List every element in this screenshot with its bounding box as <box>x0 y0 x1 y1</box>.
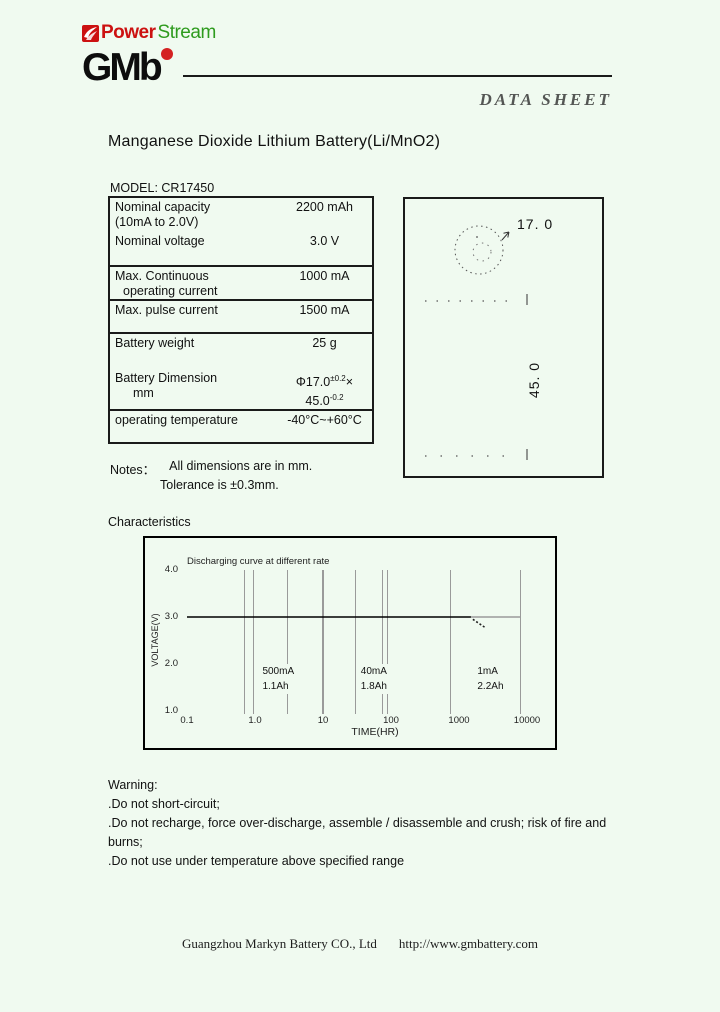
spec-value: 1500 mA <box>277 301 372 332</box>
notes-text-1: All dimensions are in mm. <box>169 459 312 478</box>
spec-value: -40°C~+60°C <box>277 411 372 442</box>
spec-label: operating temperature <box>110 411 277 442</box>
warning-item: .Do not short-circuit; <box>108 795 616 814</box>
battery-dimension-diagram: 17. 0 45. 0 <box>403 197 604 478</box>
notes-heading: Notes： <box>110 459 155 478</box>
table-row: Nominal capacity (10mA to 2.0V) 2200 mAh <box>110 198 372 232</box>
chart-annotation: 1mA2.2Ah <box>475 664 505 694</box>
warning-section: Warning: .Do not short-circuit; .Do not … <box>108 776 616 871</box>
spec-value: Φ17.0±0.2× 45.0-0.2 <box>277 364 372 409</box>
spec-value: 25 g <box>277 334 372 364</box>
datasheet-page: { "page": {"background": "#f0faf0"}, "he… <box>0 0 720 1012</box>
spec-label: Nominal capacity (10mA to 2.0V) <box>110 198 277 232</box>
warning-item: .Do not recharge, force over-discharge, … <box>108 814 616 852</box>
gmb-logo-dot-icon <box>161 48 173 60</box>
table-row: Nominal voltage 3.0 V <box>110 232 372 267</box>
gmb-logo: GMb <box>82 46 182 90</box>
powerstream-logo: PowerStream <box>82 22 216 44</box>
model-label: MODEL: CR17450 <box>110 181 214 195</box>
chart-x-axis-label: TIME(HR) <box>305 726 445 738</box>
spec-label: Max. Continuous operating current <box>110 267 277 299</box>
table-row: Max. Continuous operating current 1000 m… <box>110 267 372 301</box>
gmb-logo-text: GMb <box>82 46 160 89</box>
powerstream-power-text: Power <box>101 22 156 44</box>
notes: Notes： All dimensions are in mm. <box>110 459 312 478</box>
discharge-curve <box>145 538 551 744</box>
spec-label: Battery weight <box>110 334 277 364</box>
chart-y-axis-label: VOLTAGE(V) <box>150 613 160 666</box>
datasheet-label: DATA SHEET <box>420 90 612 110</box>
discharge-chart-plot: 4.03.02.01.00.11.010100100010000500mA1.1… <box>145 538 555 748</box>
table-row: Battery Dimension mm Φ17.0±0.2× 45.0-0.2 <box>110 364 372 411</box>
spec-value: 2200 mAh <box>277 198 372 232</box>
height-dimension-label: 45. 0 <box>526 362 542 398</box>
discharge-chart: 4.03.02.01.00.11.010100100010000500mA1.1… <box>143 536 557 750</box>
spec-label: Battery Dimension mm <box>110 364 277 409</box>
spec-value: 1000 mA <box>277 267 372 299</box>
footer: Guangzhou Markyn Battery CO., Ltdhttp://… <box>0 936 720 952</box>
powerstream-stream-text: Stream <box>158 22 216 44</box>
table-row: Max. pulse current 1500 mA <box>110 301 372 334</box>
characteristics-heading: Characteristics <box>108 515 191 529</box>
spec-value: 3.0 V <box>277 232 372 265</box>
spec-label: Max. pulse current <box>110 301 277 332</box>
page-title: Manganese Dioxide Lithium Battery(Li/MnO… <box>108 133 440 151</box>
warning-item: .Do not use under temperature above spec… <box>108 852 616 871</box>
battery-outline-drawing <box>405 199 598 472</box>
chart-annotation: 40mA1.8Ah <box>359 664 389 694</box>
diameter-dimension-label: 17. 0 <box>517 216 553 232</box>
footer-url[interactable]: http://www.gmbattery.com <box>399 936 538 951</box>
warning-heading: Warning: <box>108 776 616 795</box>
chart-annotation: 500mA1.1Ah <box>260 664 296 694</box>
header-divider <box>183 75 612 77</box>
table-row: Battery weight 25 g <box>110 334 372 364</box>
spec-table: Nominal capacity (10mA to 2.0V) 2200 mAh… <box>108 196 374 444</box>
chart-title: Discharging curve at different rate <box>187 556 329 567</box>
powerstream-swoosh-icon <box>82 25 99 42</box>
footer-company: Guangzhou Markyn Battery CO., Ltd <box>182 936 377 951</box>
notes-text-2: Tolerance is ±0.3mm. <box>160 478 279 492</box>
table-row: operating temperature -40°C~+60°C <box>110 411 372 442</box>
spec-label: Nominal voltage <box>110 232 277 265</box>
